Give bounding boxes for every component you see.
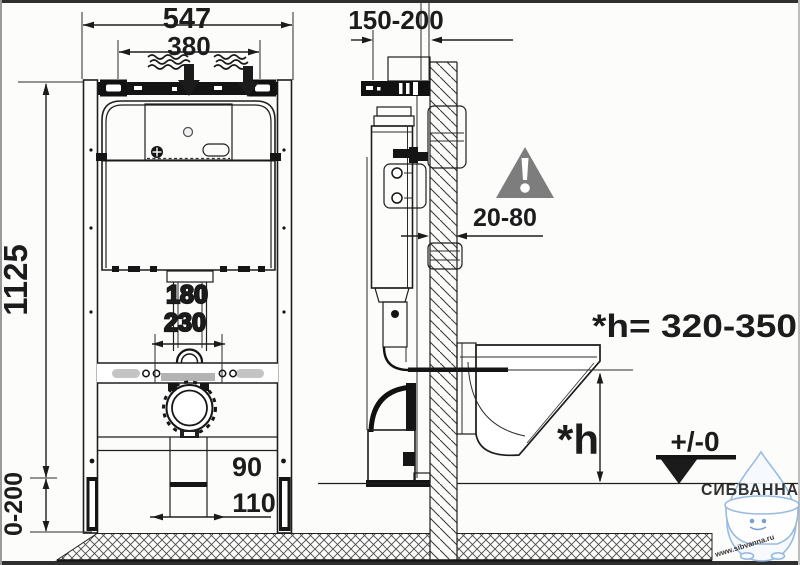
dim-label-230: 230 (164, 309, 206, 337)
floor-level-label: +/-0 (670, 426, 719, 457)
cistern-front (96, 101, 281, 272)
waste-pipe-side (366, 383, 430, 487)
dimension-20-80: 20-80 (401, 204, 543, 239)
outlet-height-marker (170, 482, 207, 487)
wall-section (430, 62, 457, 560)
drain-outlet-front (164, 382, 216, 438)
floor-hatch (57, 534, 712, 561)
dim-label-1125: 1125 (0, 244, 34, 316)
cistern-side (372, 107, 429, 347)
dimension-0-200: 0-200 (0, 472, 92, 536)
support-bracket-band (97, 363, 278, 383)
dim-label-0-200: 0-200 (0, 472, 28, 536)
side-view: 150-200 20-80 *h *h= 320-350 +/-0 (318, 3, 798, 560)
dim-label-90: 90 (232, 452, 262, 482)
warning-triangle-icon (496, 147, 554, 198)
bowl-height-note: *h= 320-350 (592, 308, 797, 344)
dim-label-110: 110 (232, 488, 276, 518)
dimension-90-110: 90 110 (150, 452, 276, 520)
dim-label-20-80: 20-80 (473, 204, 537, 232)
watermark: СИБВАННА www.sibvanna.ru (701, 452, 799, 561)
mounting-rail-side (361, 81, 430, 96)
frame-rail-right (278, 80, 292, 533)
screw-icon (151, 146, 163, 158)
watermark-brand: СИБВАННА (701, 480, 799, 499)
front-view: 547 380 1125 0-200 (0, 3, 293, 536)
technical-drawing-page: 547 380 1125 0-200 (0, 0, 800, 565)
panel-hole (184, 128, 193, 137)
panel-slot (203, 144, 229, 156)
dim-label-h: *h (557, 416, 599, 463)
dim-label-180: 180 (166, 281, 208, 309)
dim-label-380: 380 (167, 31, 210, 61)
frame-rail-left (84, 80, 98, 533)
dimension-1125: 1125 (0, 82, 83, 478)
floor-level-marker-icon: +/-0 (656, 426, 736, 484)
installation-diagram: 547 380 1125 0-200 (0, 0, 800, 565)
dim-label-150-200: 150-200 (348, 5, 443, 35)
